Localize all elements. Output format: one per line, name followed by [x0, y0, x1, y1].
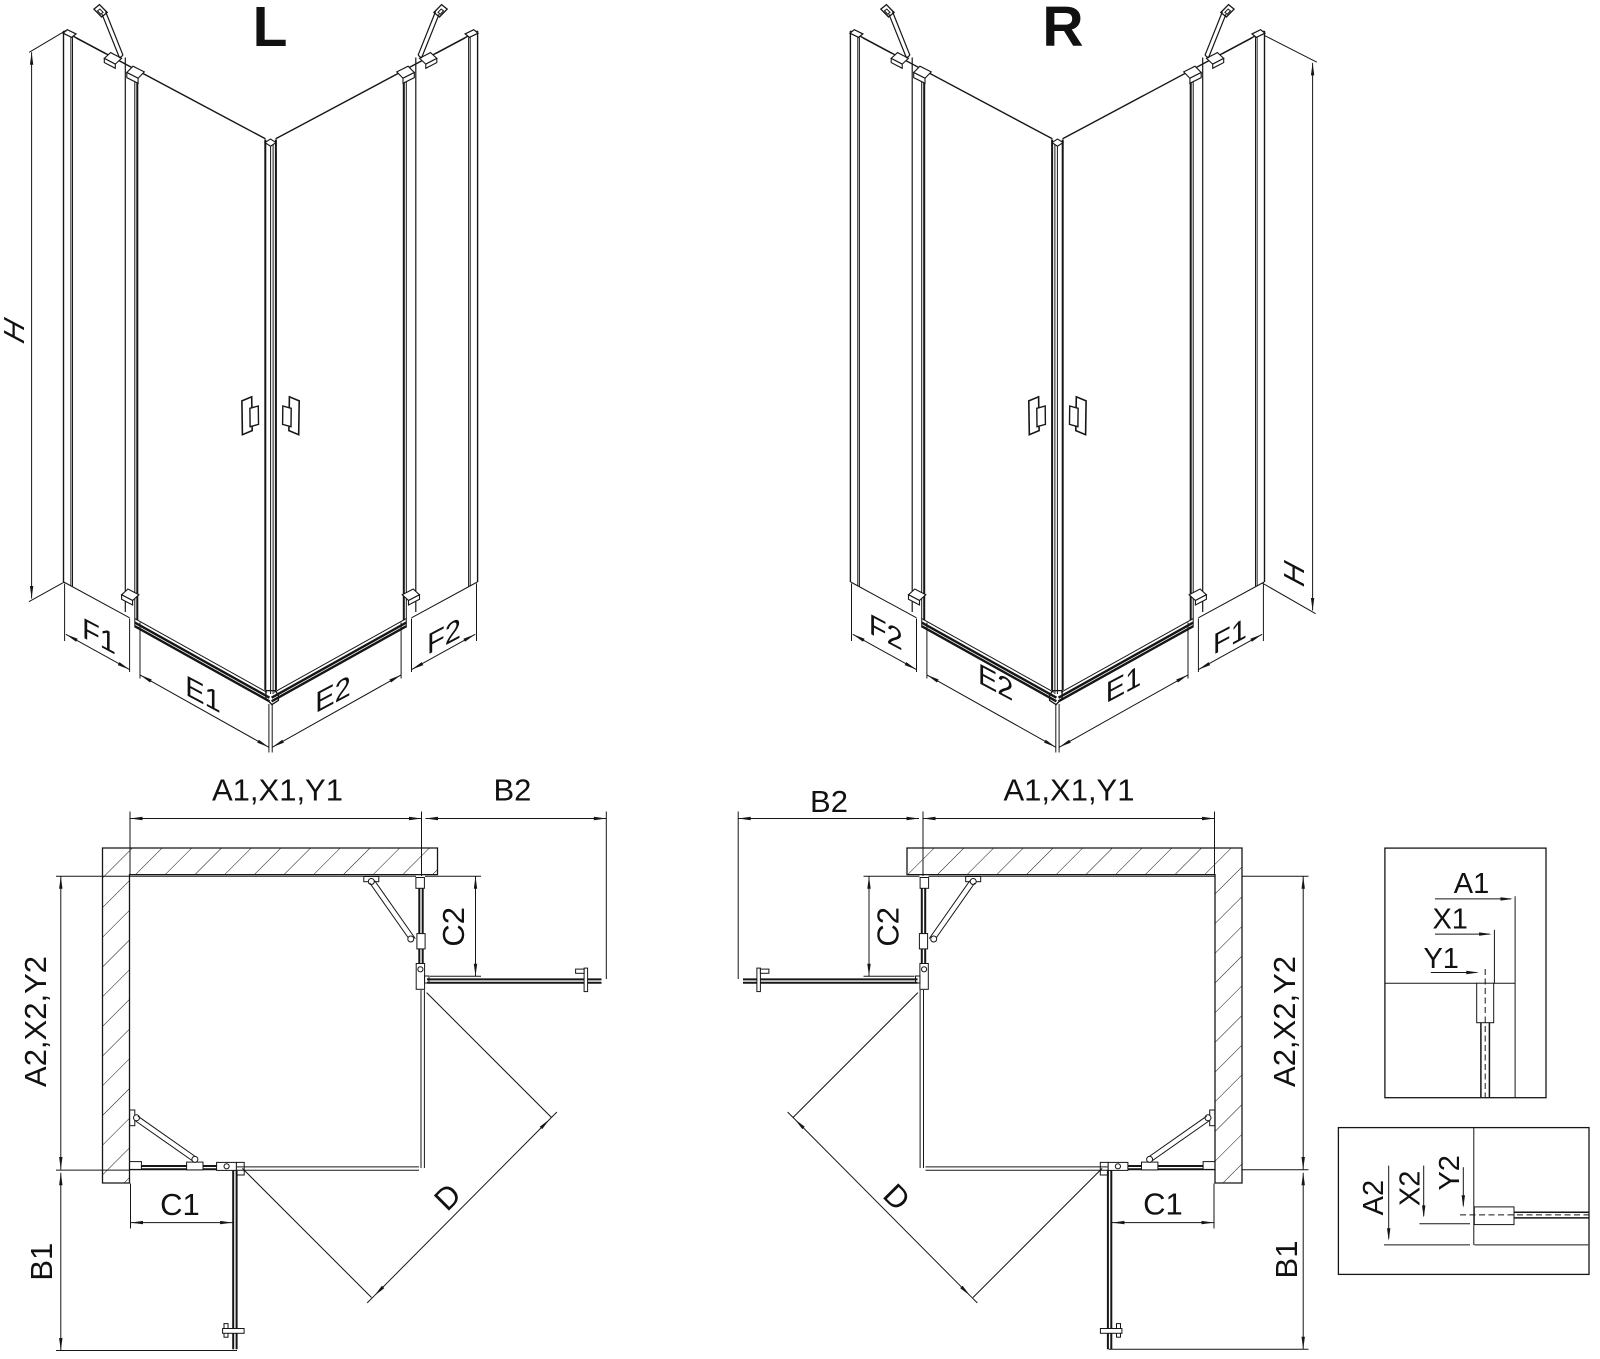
svg-text:C1: C1: [1143, 1187, 1183, 1222]
svg-text:B2: B2: [810, 784, 848, 819]
svg-text:C1: C1: [160, 1187, 200, 1222]
svg-text:C2: C2: [871, 907, 906, 947]
svg-text:A2,X2,Y2: A2,X2,Y2: [1267, 956, 1302, 1087]
svg-text:R: R: [1042, 0, 1083, 59]
svg-text:X2: X2: [1395, 1171, 1427, 1206]
svg-text:B2: B2: [493, 773, 531, 808]
svg-text:Y1: Y1: [1423, 943, 1458, 975]
svg-text:Y2: Y2: [1434, 1155, 1466, 1190]
svg-text:A2,X2,Y2: A2,X2,Y2: [18, 956, 53, 1087]
svg-text:A1,X1,Y1: A1,X1,Y1: [212, 773, 343, 808]
svg-text:B1: B1: [24, 1243, 59, 1281]
svg-text:B1: B1: [1269, 1241, 1304, 1279]
svg-text:C2: C2: [436, 907, 471, 947]
svg-text:A2: A2: [1358, 1180, 1390, 1215]
svg-text:X1: X1: [1432, 904, 1467, 936]
svg-text:A1: A1: [1454, 868, 1489, 900]
svg-text:L: L: [253, 0, 288, 59]
svg-text:A1,X1,Y1: A1,X1,Y1: [1004, 773, 1135, 808]
